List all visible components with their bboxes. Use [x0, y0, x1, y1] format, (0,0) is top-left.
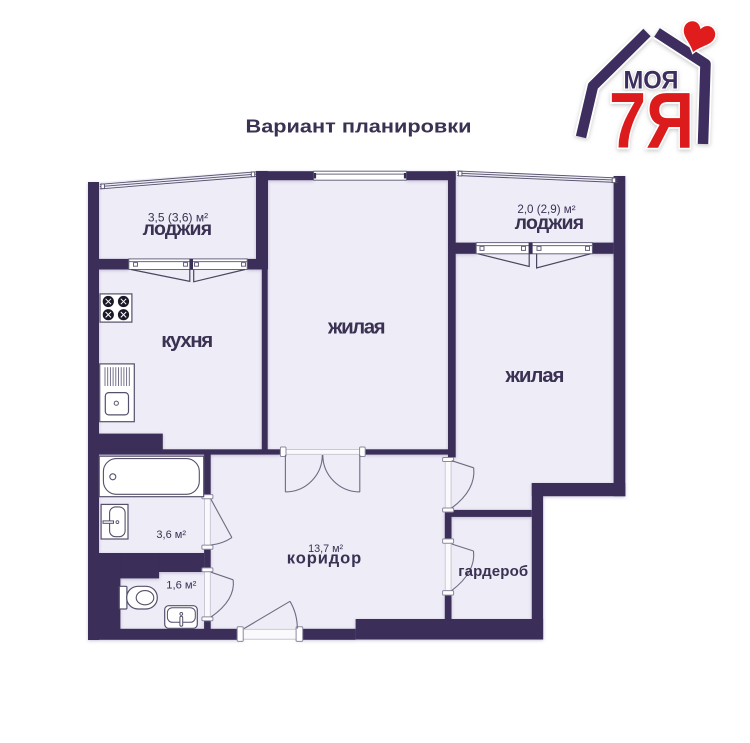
svg-text:лоджия: лоджия	[143, 218, 213, 240]
svg-text:3,6 м²: 3,6 м²	[156, 529, 186, 541]
svg-text:гардероб: гардероб	[458, 563, 528, 580]
svg-text:Вариант планировки: Вариант планировки	[246, 116, 472, 137]
svg-text:жилая: жилая	[327, 315, 386, 338]
svg-text:7Я: 7Я	[609, 76, 694, 165]
svg-text:1,6 м²: 1,6 м²	[166, 580, 196, 592]
svg-text:коридор: коридор	[287, 550, 362, 568]
svg-text:лоджия: лоджия	[515, 212, 585, 234]
svg-text:жилая: жилая	[505, 364, 565, 387]
svg-text:кухня: кухня	[161, 329, 213, 352]
